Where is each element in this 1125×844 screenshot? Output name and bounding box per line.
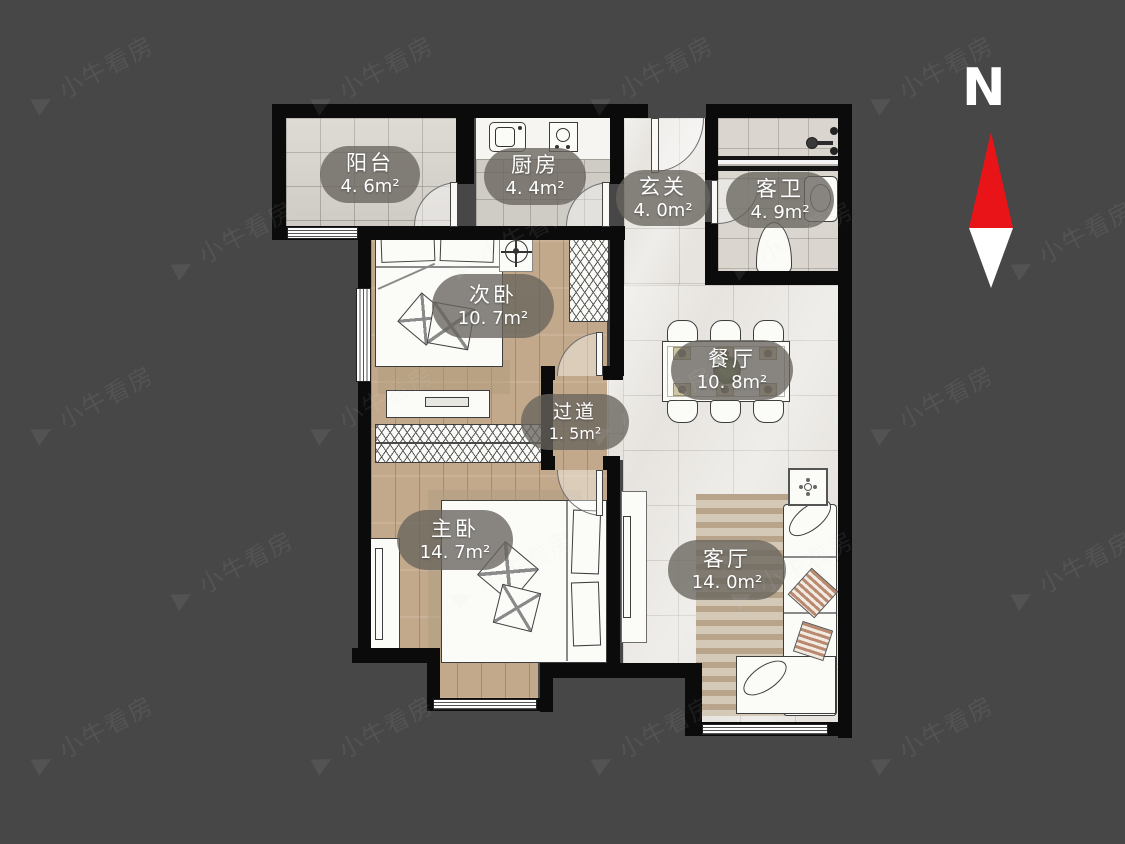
room-name: 客厅 — [703, 547, 751, 572]
window-master — [433, 699, 537, 710]
room-label-bath: 客卫 4. 9m² — [726, 172, 834, 228]
watermark-text: ▶ 小牛看房 — [165, 521, 300, 615]
master-side-cabinet-door — [375, 548, 383, 640]
watermark-text: ▶ 小牛看房 — [305, 686, 440, 780]
wall — [603, 456, 620, 470]
watermark-text: ▶ 小牛看房 — [865, 686, 1000, 780]
bedroom2-pillow — [381, 237, 436, 263]
room-name: 客卫 — [756, 177, 804, 202]
room-name: 阳台 — [346, 151, 394, 176]
wall — [705, 271, 852, 285]
room-name: 主卧 — [431, 517, 479, 542]
shower-screen — [718, 156, 838, 171]
wall — [358, 382, 371, 650]
room-area: 14. 7m² — [420, 542, 491, 564]
dining-chair — [753, 400, 784, 423]
wall — [358, 226, 371, 289]
sink-basin — [495, 127, 515, 147]
wall — [610, 226, 624, 376]
room-name: 厨房 — [511, 153, 559, 178]
wall — [603, 366, 623, 380]
bedroom2-pillow — [440, 237, 495, 263]
wall — [272, 104, 648, 118]
blanket-edge-line — [376, 266, 502, 268]
room-area: 4. 0m² — [633, 200, 692, 222]
window-living — [702, 724, 828, 735]
wall — [540, 663, 702, 678]
stove-burner — [556, 128, 570, 142]
watermark-text: ▶ 小牛看房 — [1005, 521, 1125, 615]
wall — [272, 104, 286, 240]
compass-north-label: N — [962, 58, 1006, 118]
watermark-text: ▶ 小牛看房 — [25, 356, 160, 450]
tv — [623, 516, 631, 618]
room-area: 10. 8m² — [697, 372, 768, 394]
watermark-text: ▶ 小牛看房 — [25, 26, 160, 120]
wall — [838, 104, 852, 738]
sofa-seat-line — [784, 556, 836, 558]
room-label-dining: 餐厅 10. 8m² — [671, 340, 793, 400]
room-label-kitchen: 厨房 4. 4m² — [484, 148, 586, 205]
wardrobe-rod — [375, 442, 542, 444]
room-area: 1. 5m² — [549, 424, 602, 443]
room-area: 14. 0m² — [692, 572, 763, 594]
wall — [706, 104, 852, 118]
door-leaf-balcony — [450, 182, 458, 227]
window-balcony — [287, 227, 358, 239]
door-leaf-master — [596, 470, 603, 516]
room-name: 玄关 — [639, 175, 687, 200]
master-bed-headline — [566, 501, 568, 661]
shower-knob — [830, 147, 838, 155]
watermark-text: ▶ 小牛看房 — [865, 356, 1000, 450]
door-leaf-bath — [711, 180, 718, 224]
master-pillow — [571, 510, 601, 575]
shower-arm-icon — [817, 141, 833, 145]
room-area: 4. 4m² — [505, 178, 564, 200]
floorplan-canvas: 阳台 4. 6m² 厨房 4. 4m² 玄关 4. 0m² 客卫 4. 9m² … — [0, 0, 1125, 844]
wall — [705, 118, 718, 180]
watermark-text: ▶ 小牛看房 — [1005, 191, 1125, 285]
door-leaf-bedroom2 — [596, 332, 603, 376]
master-pillow — [571, 582, 601, 647]
room-area: 4. 9m² — [750, 202, 809, 224]
room-label-hallway: 过道 1. 5m² — [521, 394, 629, 450]
dining-chair — [667, 320, 698, 343]
wall — [427, 655, 440, 700]
compass-needle-north — [969, 132, 1013, 228]
room-label-bedroom2: 次卧 10. 7m² — [432, 274, 554, 338]
compass-needle-south — [969, 228, 1013, 288]
window-bedroom2 — [356, 288, 371, 382]
room-name: 次卧 — [469, 283, 517, 308]
room-name: 餐厅 — [708, 347, 756, 372]
shower-knob — [830, 127, 838, 135]
wall — [610, 118, 624, 184]
sink-faucet — [518, 126, 522, 130]
room-area: 10. 7m² — [458, 308, 529, 330]
dining-chair — [710, 400, 741, 423]
room-area: 4. 6m² — [340, 176, 399, 198]
wall — [456, 118, 474, 184]
room-label-master: 主卧 14. 7m² — [397, 510, 513, 570]
room-name: 过道 — [553, 401, 597, 424]
door-leaf-entrance — [651, 118, 659, 173]
bedroom2-shelf — [569, 232, 609, 322]
room-label-living: 客厅 14. 0m² — [668, 540, 786, 600]
master-side-cabinet — [369, 538, 400, 651]
room-label-balcony: 阳台 4. 6m² — [320, 146, 420, 203]
dresser-tray — [425, 397, 469, 407]
watermark-text: ▶ 小牛看房 — [25, 686, 160, 780]
flower-icon — [804, 483, 812, 491]
door-leaf-kitchen — [602, 182, 610, 227]
wall — [607, 458, 620, 665]
ceiling-symbol-crosshair — [515, 236, 517, 267]
stove-knob — [566, 145, 570, 149]
dining-chair — [667, 400, 698, 423]
room-label-entry: 玄关 4. 0m² — [616, 170, 710, 226]
ceiling-symbol-crosshair — [501, 251, 532, 253]
